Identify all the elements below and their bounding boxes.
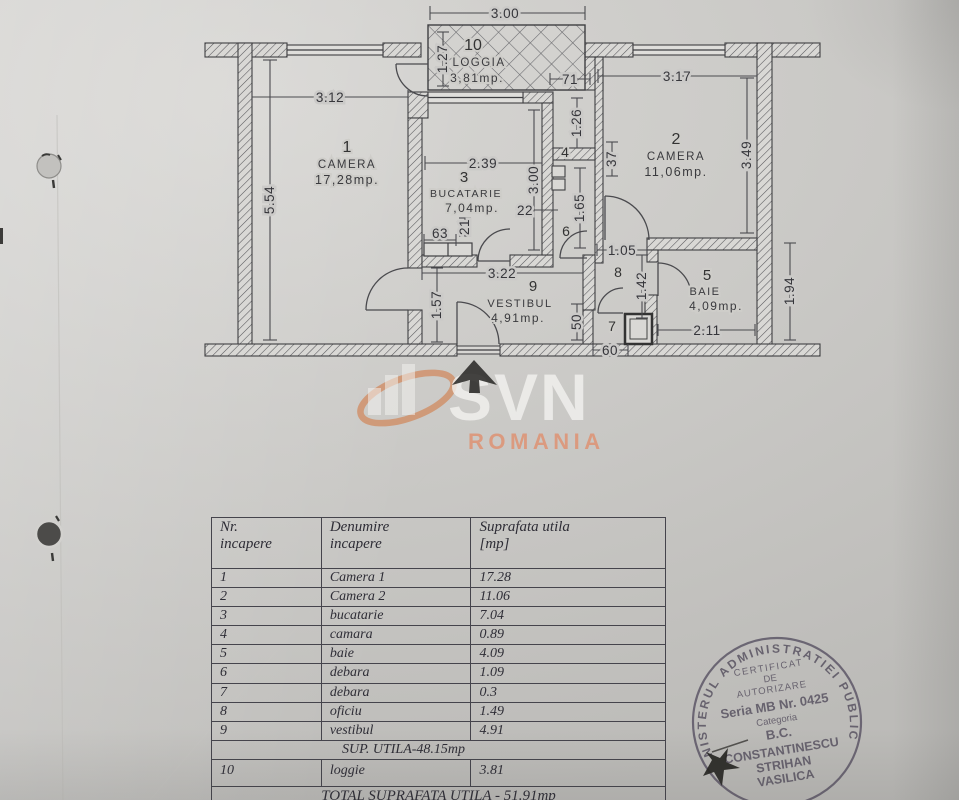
- svg-text:2: 2: [672, 131, 681, 148]
- cell-area: 0.3: [471, 683, 666, 702]
- svg-text:BAIE: BAIE: [689, 286, 720, 298]
- scanned-floorplan-page: 3.00 1.27 71 3.12 5.54 3.17 3.49 37 2.39…: [0, 0, 959, 800]
- dim-baie-width: 2.11: [658, 323, 755, 338]
- loggia-door: [396, 64, 428, 96]
- camera2-door: [605, 196, 649, 240]
- table-row: 9vestibul4.91: [212, 721, 666, 740]
- svg-text:CAMERA: CAMERA: [318, 159, 376, 171]
- svg-text:22: 22: [517, 203, 533, 218]
- table-row: 3bucatarie7.04: [212, 607, 666, 626]
- logo-region: ROMANIA: [468, 429, 605, 454]
- cell-name: bucatarie: [321, 607, 471, 626]
- cell-nr: 8: [212, 702, 322, 721]
- svg-text:4: 4: [561, 144, 569, 160]
- svg-text:3.22: 3.22: [488, 266, 516, 281]
- dim-debara6-height: 1.65: [572, 168, 587, 248]
- svg-text:5: 5: [703, 267, 711, 284]
- cell-area: 4.91: [471, 721, 666, 740]
- cell-area: 0.89: [471, 626, 666, 645]
- svg-text:2.11: 2.11: [693, 323, 720, 338]
- table-row: 7debara0.3: [212, 683, 666, 702]
- room-label-baie: 5 BAIE 4,09mp.: [689, 267, 743, 313]
- svg-text:50: 50: [569, 314, 584, 330]
- cell-nr: 7: [212, 683, 322, 702]
- stamp-line: B.C.: [765, 724, 793, 743]
- svg-text:1.94: 1.94: [782, 277, 797, 305]
- cell-area: 11.06: [471, 588, 666, 607]
- header-nr: Nr.incapere: [212, 518, 322, 569]
- svg-text:3.00: 3.00: [526, 166, 541, 194]
- cell-name: Camera 1: [321, 569, 471, 588]
- cell-nr: 10: [212, 759, 322, 786]
- cell-name: Camera 2: [321, 588, 471, 607]
- cell-area: 17.28: [471, 569, 666, 588]
- dim-baie-right: 1.94: [782, 243, 797, 340]
- dim-camera2-height: 3.49: [739, 78, 754, 233]
- room-label-camara: 4: [561, 144, 569, 160]
- room-label-camera2: 2 CAMERA 11,06mp.: [644, 131, 707, 179]
- svg-text:6: 6: [562, 223, 570, 239]
- dim-camera2-width: 3.17: [598, 69, 757, 84]
- dim-camera1-height: 5.54: [262, 60, 277, 340]
- dim-camara-height: 1.26: [569, 98, 584, 148]
- table-header-row: Nr.incapere Denumireincapere Suprafata u…: [212, 518, 666, 569]
- cell-nr: 2: [212, 588, 322, 607]
- svg-text:3.12: 3.12: [316, 90, 344, 105]
- svg-text:3,81mp.: 3,81mp.: [450, 71, 504, 85]
- svg-text:3.17: 3.17: [663, 69, 691, 84]
- cell-name: oficiu: [321, 702, 471, 721]
- dim-camera2-offset: 37: [604, 142, 619, 176]
- cell-name: debara: [321, 664, 471, 683]
- dim-debara7-height: 50: [569, 304, 584, 340]
- svg-text:71: 71: [562, 72, 578, 87]
- svg-text:8: 8: [614, 264, 622, 280]
- table-row: 2Camera 211.06: [212, 588, 666, 607]
- svg-text:37: 37: [604, 151, 619, 167]
- cell-area: 7.04: [471, 607, 666, 626]
- svg-text:4,09mp.: 4,09mp.: [689, 299, 743, 313]
- room-label-oficiu: 8: [614, 264, 622, 280]
- area-table: Nr.incapere Denumireincapere Suprafata u…: [211, 517, 666, 800]
- svg-text:CAMERA: CAMERA: [647, 151, 705, 163]
- table-row: 10loggie3.81: [212, 759, 666, 786]
- debara7-door: [598, 288, 623, 313]
- cell-nr: 6: [212, 664, 322, 683]
- table-row: 8oficiu1.49: [212, 702, 666, 721]
- svg-text:1.42: 1.42: [634, 272, 649, 300]
- cell-area: 1.49: [471, 702, 666, 721]
- room-label-bucatarie: 3 BUCATARIE 7,04mp.: [430, 169, 502, 215]
- svg-text:BUCATARIE: BUCATARIE: [430, 188, 502, 200]
- svg-text:2.39: 2.39: [469, 156, 497, 171]
- svg-text:7: 7: [608, 318, 616, 334]
- cell-nr: 4: [212, 626, 322, 645]
- cell-nr: 3: [212, 607, 322, 626]
- dim-kitchen-21: 21: [457, 218, 472, 236]
- svg-text:1.27: 1.27: [435, 45, 450, 73]
- svg-text:1.65: 1.65: [572, 194, 587, 222]
- cell-name: baie: [321, 645, 471, 664]
- room-label-debara6: 6: [562, 223, 570, 239]
- logo-bars-icon: [368, 364, 415, 415]
- binder-hole-bottom: [36, 516, 62, 561]
- cell-area: 4.09: [471, 645, 666, 664]
- svg-text:10: 10: [464, 37, 482, 54]
- svg-text:63: 63: [432, 226, 448, 241]
- bucatarie-door: [478, 229, 510, 261]
- cell-name: camara: [321, 626, 471, 645]
- table-row: 6debara1.09: [212, 664, 666, 683]
- header-denumire: Denumireincapere: [321, 518, 471, 569]
- total-row: TOTAL SUPRAFATA UTILA - 51.91mp: [212, 786, 666, 800]
- sup-utila-text: SUP. UTILA-48.15mp: [212, 740, 666, 759]
- svg-text:9: 9: [529, 278, 537, 295]
- svg-text:4,91mp.: 4,91mp.: [491, 311, 545, 325]
- room-label-debara7: 7: [608, 318, 616, 334]
- svg-text:3.00: 3.00: [491, 6, 519, 21]
- table-row: 1Camera 117.28: [212, 569, 666, 588]
- svg-text:17,28mp.: 17,28mp.: [315, 173, 379, 187]
- cell-nr: 5: [212, 645, 322, 664]
- cell-area: 1.09: [471, 664, 666, 683]
- sup-utila-row: SUP. UTILA-48.15mp: [212, 740, 666, 759]
- dim-vestibul-height: 1.57: [429, 268, 444, 342]
- dim-camera1-width: 3.12: [252, 90, 408, 105]
- cell-name: vestibul: [321, 721, 471, 740]
- dim-bucatarie-width: 2.39: [425, 156, 542, 171]
- cell-nr: 9: [212, 721, 322, 740]
- dim-bucatarie-height: 3.00: [526, 110, 541, 250]
- cell-nr: 1: [212, 569, 322, 588]
- edge-mark: [0, 228, 3, 244]
- svg-text:1.57: 1.57: [429, 291, 444, 319]
- svg-text:1.26: 1.26: [569, 109, 584, 137]
- svg-text:1: 1: [343, 139, 352, 156]
- svg-text:21: 21: [457, 219, 472, 235]
- svg-text:VESTIBUL: VESTIBUL: [487, 298, 552, 310]
- svg-text:5.54: 5.54: [262, 186, 277, 214]
- svg-text:3: 3: [460, 169, 468, 186]
- room-label-vestibul: 9 VESTIBUL 4,91mp.: [487, 278, 552, 325]
- cell-name: debara: [321, 683, 471, 702]
- svg-text:60: 60: [602, 343, 618, 358]
- svg-text:1.05: 1.05: [608, 243, 636, 258]
- svg-text:LOGGIA: LOGGIA: [452, 57, 505, 69]
- total-text: TOTAL SUPRAFATA UTILA - 51.91mp: [212, 786, 666, 800]
- dim-vestibul-width: 3.22: [422, 266, 583, 281]
- header-suprafata: Suprafata utila[mp]: [471, 518, 666, 569]
- svg-text:3.49: 3.49: [739, 141, 754, 169]
- table-row: 4camara0.89: [212, 626, 666, 645]
- table-row: 5baie4.09: [212, 645, 666, 664]
- dim-loggia-width: 3.00: [430, 6, 585, 21]
- svg-text:11,06mp.: 11,06mp.: [644, 165, 707, 179]
- baie-door: [658, 263, 691, 296]
- svg-text:7,04mp.: 7,04mp.: [445, 201, 499, 215]
- room-label-camera1: 1 CAMERA 17,28mp.: [315, 139, 379, 187]
- camera1-door: [366, 268, 408, 310]
- cell-name: loggie: [321, 759, 471, 786]
- dim-oficiu-width: 1.05: [597, 243, 647, 258]
- cell-area: 3.81: [471, 759, 666, 786]
